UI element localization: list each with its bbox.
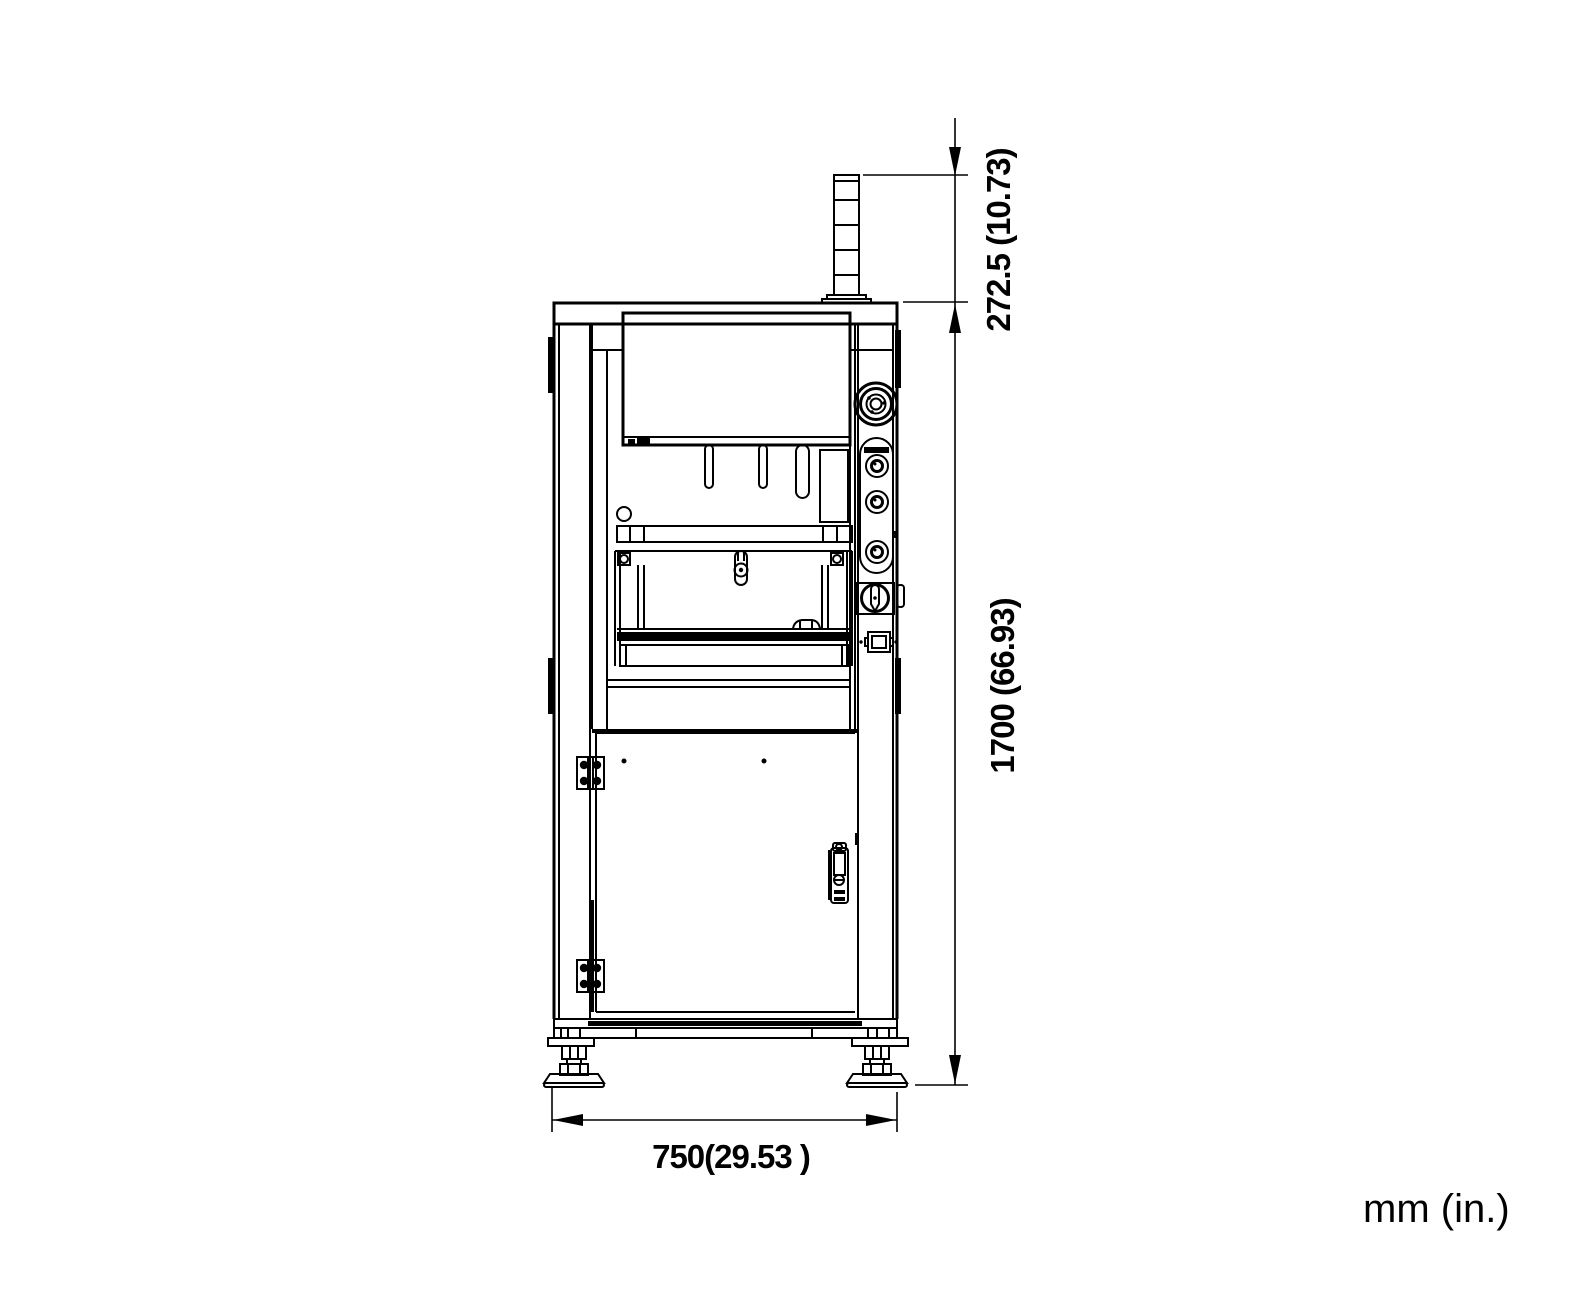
pilot-hole xyxy=(617,507,631,521)
control-column xyxy=(855,383,898,652)
door-handle xyxy=(829,843,848,903)
leveling-foot-left xyxy=(544,1046,604,1087)
connector-port xyxy=(859,632,897,652)
nameplate-badge xyxy=(628,439,635,444)
table-tray xyxy=(620,645,848,666)
machine-front-view-drawing: 272.5 (10.73) 1700 (66.93) 750(29.53 ) m… xyxy=(0,0,1576,1300)
arrow-up-to-top-plate xyxy=(949,304,961,333)
main-power-switch xyxy=(856,583,894,614)
arrow-left xyxy=(553,1114,583,1126)
pushbutton-3 xyxy=(866,541,888,563)
arrow-down-to-tower-top xyxy=(949,147,961,176)
cabinet xyxy=(577,729,859,1012)
left-column xyxy=(548,324,622,1019)
foot-plate-left xyxy=(548,1038,594,1046)
left-tab-upper xyxy=(548,337,554,393)
guide-rods xyxy=(705,445,809,498)
press-table xyxy=(617,629,852,666)
door-dot-right xyxy=(762,759,767,764)
right-tab-lower xyxy=(895,658,901,714)
dimensional-drawing-page: 272.5 (10.73) 1700 (66.93) 750(29.53 ) m… xyxy=(0,0,1576,1300)
arrow-right xyxy=(866,1114,896,1126)
panel-label-band xyxy=(864,447,889,453)
dimension-annotations: 272.5 (10.73) 1700 (66.93) 750(29.53 ) m… xyxy=(552,118,1510,1231)
left-tab-lower xyxy=(548,658,554,714)
overall-height-label: 1700 (66.93) xyxy=(984,598,1021,773)
right-column xyxy=(850,324,904,1019)
arrow-down-to-floor xyxy=(949,1055,961,1084)
center-hanger xyxy=(735,551,748,585)
overall-width-label: 750(29.53 ) xyxy=(652,1138,810,1175)
work-area xyxy=(615,551,852,666)
leveling-foot-right xyxy=(847,1046,907,1087)
cabinet-door xyxy=(590,733,859,1012)
pushbutton-2 xyxy=(866,491,888,513)
foot-plate-right xyxy=(852,1038,908,1046)
units-label: mm (in.) xyxy=(1363,1187,1510,1231)
pushbutton-panel xyxy=(860,438,893,573)
dimension-overall-width: 750(29.53 ) xyxy=(552,1088,897,1175)
stopper-block xyxy=(793,620,820,629)
machine-outline xyxy=(544,175,908,1087)
door-dot-left xyxy=(622,759,627,764)
right-tab-upper xyxy=(895,330,901,388)
signal-tower xyxy=(822,175,871,303)
latch-mark xyxy=(855,833,859,845)
door-gap-shadow xyxy=(590,900,594,1012)
inner-side-panel xyxy=(820,450,848,522)
emergency-stop-button xyxy=(855,383,897,425)
pushbutton-1 xyxy=(866,455,888,477)
press-beam xyxy=(617,526,852,542)
press-head-cover xyxy=(623,313,850,445)
base-frame xyxy=(548,1019,908,1046)
tower-height-label: 272.5 (10.73) xyxy=(980,148,1017,331)
